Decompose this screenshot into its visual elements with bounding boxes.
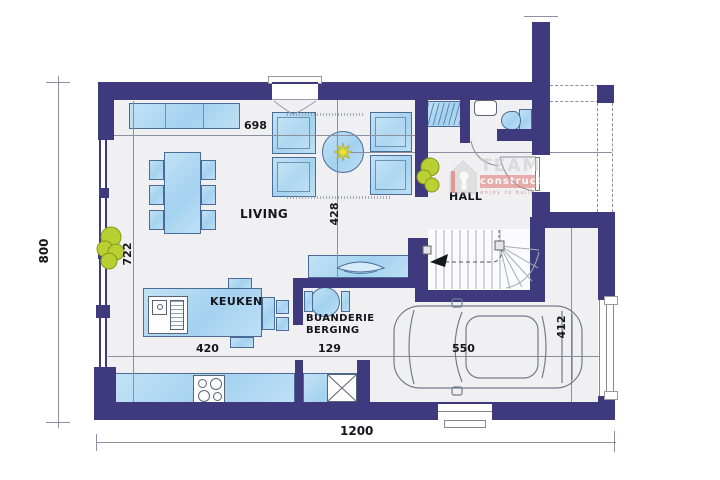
room-label-laundry: BUANDERIE	[306, 313, 375, 324]
dim-label-722: 722	[121, 236, 135, 272]
dim-label-800: 800	[37, 233, 51, 269]
dim-label-428: 428	[328, 196, 342, 232]
fine-print	[287, 113, 365, 116]
stairs	[436, 230, 539, 289]
dim-label-420: 420	[196, 342, 219, 355]
dim-label-698: 698	[244, 119, 267, 132]
floor-plan: LIVING HALL KEUKEN BUANDERIE BERGING 698…	[0, 0, 720, 480]
sun-star-icon	[334, 143, 352, 161]
dim-label-550: 550	[452, 342, 475, 355]
watermark-construct-text: construct	[480, 175, 536, 188]
room-label-berging: BERGING	[306, 325, 359, 336]
car	[394, 299, 582, 395]
watermark-team-text: TEAM	[480, 156, 541, 176]
stairs-arrow-icon	[430, 254, 448, 267]
bush-left	[97, 227, 124, 269]
dim-label-412: 412	[555, 309, 569, 345]
watermark-tagline: enjoy to build	[480, 190, 536, 196]
watermark-logo: TEAM construct enjoy to build	[448, 156, 540, 200]
house-icon	[448, 157, 478, 197]
room-label-kitchen: KEUKEN	[210, 295, 263, 308]
bush-hall	[417, 158, 439, 192]
dim-label-1200: 1200	[340, 424, 373, 438]
appliance-x	[328, 375, 356, 401]
boat-sink	[337, 262, 384, 274]
dim-label-129: 129	[318, 342, 341, 355]
faucet-dot	[158, 305, 163, 310]
room-label-living: LIVING	[240, 207, 288, 221]
